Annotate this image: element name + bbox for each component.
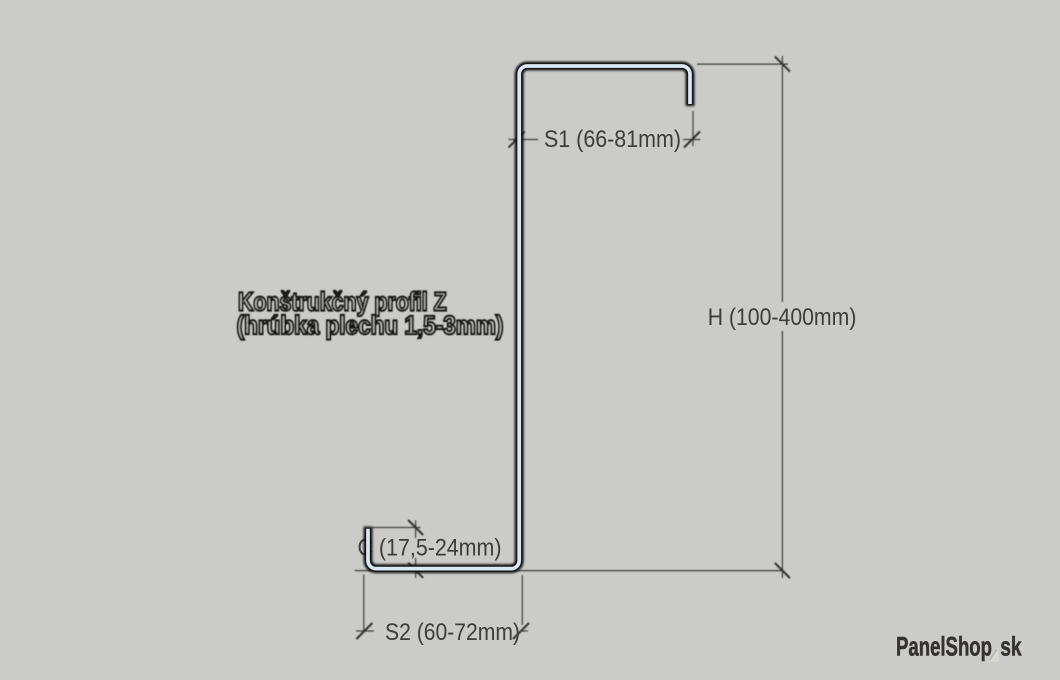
svg-text:S2 (60-72mm): S2 (60-72mm) (385, 619, 520, 646)
svg-text:PanelShop: PanelShop (896, 632, 992, 662)
svg-text:H (100-400mm): H (100-400mm) (708, 304, 857, 331)
svg-text:S1 (66-81mm): S1 (66-81mm) (544, 126, 681, 153)
svg-text:C (17,5-24mm): C (17,5-24mm) (358, 535, 502, 562)
svg-text:sk: sk (1000, 632, 1022, 662)
svg-text:(hrúbka plechu 1,5-3mm): (hrúbka plechu 1,5-3mm) (237, 310, 504, 340)
